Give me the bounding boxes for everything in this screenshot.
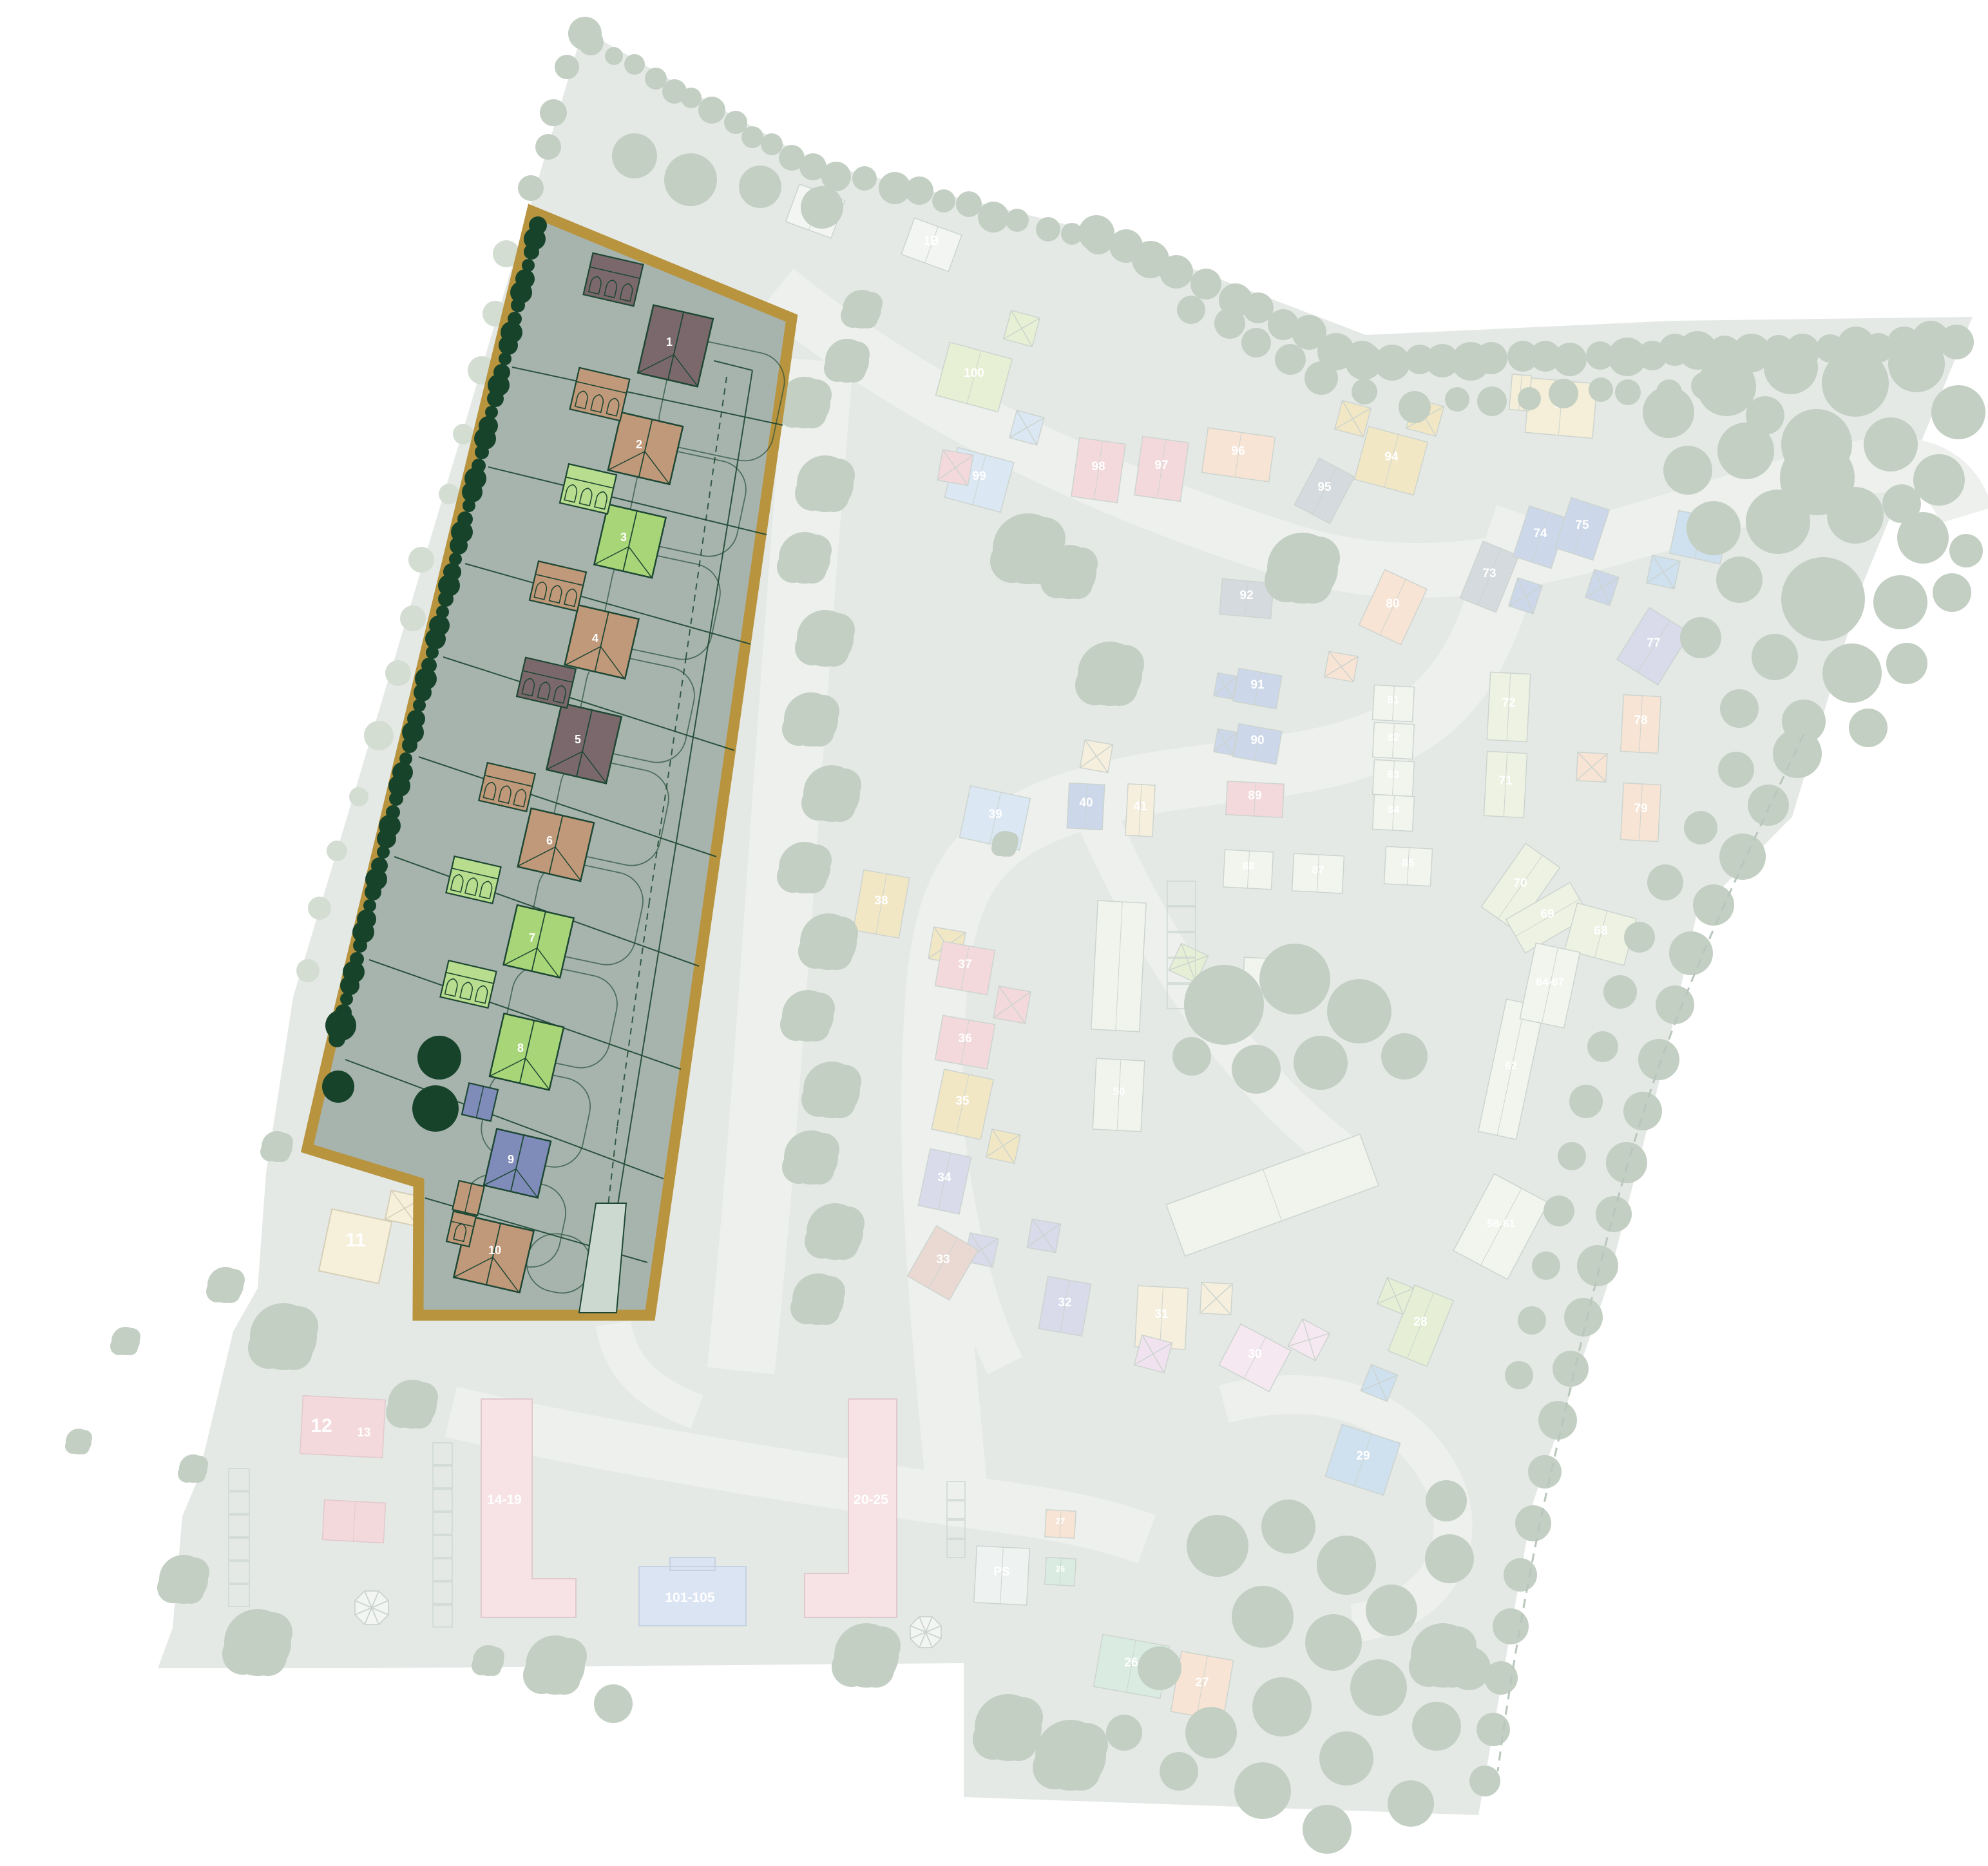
svg-text:20-25: 20-25 (854, 1492, 888, 1507)
svg-text:32: 32 (1058, 1296, 1071, 1309)
svg-text:78: 78 (1634, 714, 1647, 727)
svg-text:81: 81 (1388, 694, 1400, 706)
svg-text:8: 8 (517, 1042, 524, 1054)
svg-text:2: 2 (636, 438, 642, 451)
svg-text:14-19: 14-19 (487, 1492, 522, 1507)
svg-text:99: 99 (972, 470, 986, 483)
svg-text:1B: 1B (924, 234, 939, 248)
svg-text:95: 95 (1317, 481, 1332, 494)
svg-text:37: 37 (958, 958, 971, 971)
svg-text:71: 71 (1498, 774, 1513, 788)
svg-text:39: 39 (988, 808, 1002, 821)
svg-text:41: 41 (1133, 800, 1147, 814)
svg-text:80: 80 (1386, 597, 1399, 611)
svg-text:97: 97 (1154, 459, 1168, 472)
svg-text:85: 85 (1402, 857, 1415, 869)
svg-text:69: 69 (1540, 908, 1554, 921)
svg-text:26: 26 (1124, 1656, 1138, 1670)
svg-text:87: 87 (1312, 864, 1324, 876)
svg-text:26: 26 (1056, 1564, 1065, 1574)
svg-text:36: 36 (958, 1032, 971, 1045)
svg-text:58-61: 58-61 (1487, 1217, 1515, 1230)
svg-text:88: 88 (1243, 860, 1255, 872)
svg-text:6: 6 (546, 834, 553, 847)
svg-text:73: 73 (1482, 567, 1496, 580)
svg-text:77: 77 (1647, 636, 1660, 650)
svg-text:79: 79 (1634, 802, 1647, 815)
svg-text:3: 3 (620, 531, 627, 544)
svg-text:75: 75 (1575, 519, 1589, 532)
svg-text:27: 27 (1195, 1676, 1209, 1690)
svg-text:50: 50 (1113, 1085, 1125, 1098)
svg-text:101-105: 101-105 (665, 1590, 714, 1605)
svg-text:83: 83 (1388, 768, 1400, 781)
svg-text:31: 31 (1154, 1308, 1169, 1321)
svg-text:27: 27 (1056, 1516, 1065, 1526)
svg-text:9: 9 (508, 1153, 514, 1166)
svg-text:5: 5 (575, 733, 581, 746)
svg-text:68: 68 (1594, 924, 1607, 938)
svg-text:82: 82 (1388, 731, 1400, 743)
svg-text:89: 89 (1248, 789, 1261, 803)
svg-text:28: 28 (1413, 1315, 1427, 1329)
svg-text:35: 35 (955, 1094, 970, 1108)
svg-text:70: 70 (1513, 877, 1527, 890)
svg-text:72: 72 (1502, 696, 1515, 710)
svg-text:PS: PS (993, 1565, 1009, 1579)
svg-text:11: 11 (345, 1230, 366, 1251)
svg-text:1: 1 (666, 336, 673, 348)
svg-text:29: 29 (1356, 1449, 1370, 1463)
svg-text:34: 34 (937, 1171, 951, 1185)
svg-text:33: 33 (936, 1253, 950, 1266)
svg-text:96: 96 (1231, 444, 1245, 458)
svg-text:74: 74 (1533, 527, 1547, 540)
svg-text:84: 84 (1388, 803, 1400, 815)
svg-text:13: 13 (357, 1426, 370, 1440)
svg-text:64-67: 64-67 (1536, 976, 1563, 988)
svg-text:94: 94 (1384, 450, 1399, 464)
svg-text:12: 12 (311, 1415, 332, 1436)
svg-text:62: 62 (1505, 1060, 1518, 1072)
svg-text:98: 98 (1091, 460, 1105, 473)
svg-text:40: 40 (1079, 796, 1093, 810)
svg-text:30: 30 (1248, 1347, 1261, 1361)
svg-text:100: 100 (964, 367, 984, 380)
svg-text:91: 91 (1250, 678, 1265, 692)
svg-text:4: 4 (592, 632, 598, 645)
svg-text:38: 38 (874, 894, 888, 908)
svg-text:7: 7 (529, 931, 535, 944)
svg-text:10: 10 (488, 1244, 501, 1257)
svg-text:90: 90 (1250, 734, 1264, 747)
svg-text:92: 92 (1239, 589, 1253, 602)
